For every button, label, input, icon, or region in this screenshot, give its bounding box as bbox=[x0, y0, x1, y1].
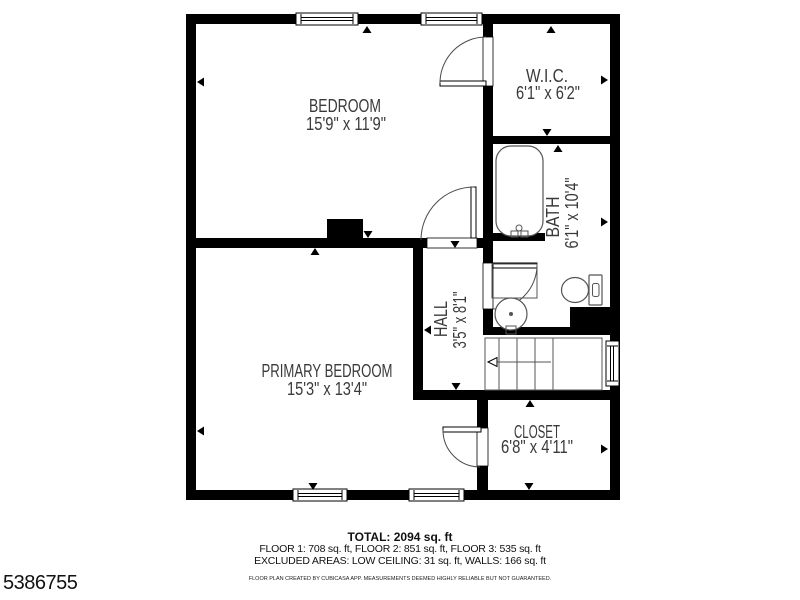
wic-dims: 6'1" x 6'2" bbox=[516, 83, 580, 103]
window-bottom-1 bbox=[293, 489, 347, 501]
closet-door bbox=[443, 427, 488, 467]
floor-plan-drawing: BEDROOM 15'9" x 11'9" W.I.C. 6'1" x 6'2"… bbox=[0, 0, 800, 600]
toilet bbox=[562, 275, 603, 305]
bathtub bbox=[496, 146, 543, 237]
sink bbox=[492, 264, 537, 334]
floor-areas-text: FLOOR 1: 708 sq. ft, FLOOR 2: 851 sq. ft… bbox=[0, 544, 800, 556]
primary-bedroom-dims: 15'3" x 13'4" bbox=[287, 379, 367, 399]
window-top-1 bbox=[296, 13, 358, 25]
area-summary: TOTAL: 2094 sq. ft FLOOR 1: 708 sq. ft, … bbox=[0, 531, 800, 582]
primary-bedroom-label: PRIMARY BEDROOM bbox=[262, 361, 393, 381]
bath-dims: 6'1" x 10'4" bbox=[562, 178, 582, 249]
window-right bbox=[606, 341, 619, 386]
disclaimer-text: FLOOR PLAN CREATED BY CUBICASA APP. MEAS… bbox=[0, 576, 800, 582]
hall-dims: 3'5" x 8'1" bbox=[450, 292, 470, 349]
bath-label: BATH bbox=[543, 197, 563, 238]
closet-dims: 6'8" x 4'11" bbox=[501, 437, 573, 457]
staircase bbox=[485, 338, 602, 390]
window-top-2 bbox=[421, 13, 482, 25]
chimney bbox=[327, 219, 363, 238]
listing-id: 5386755 bbox=[3, 572, 77, 595]
window-bottom-2 bbox=[409, 489, 464, 501]
bedroom-dims: 15'9" x 11'9" bbox=[306, 114, 386, 134]
stair-direction-arrow-icon bbox=[488, 358, 497, 367]
bedroom-door bbox=[421, 187, 477, 248]
wic-door bbox=[440, 37, 493, 86]
hall-label: HALL bbox=[431, 301, 451, 337]
excluded-areas-text: EXCLUDED AREAS: LOW CEILING: 31 sq. ft, … bbox=[0, 556, 800, 568]
bedroom-label: BEDROOM bbox=[309, 96, 381, 116]
floor-plan-page: BEDROOM 15'9" x 11'9" W.I.C. 6'1" x 6'2"… bbox=[0, 0, 800, 600]
